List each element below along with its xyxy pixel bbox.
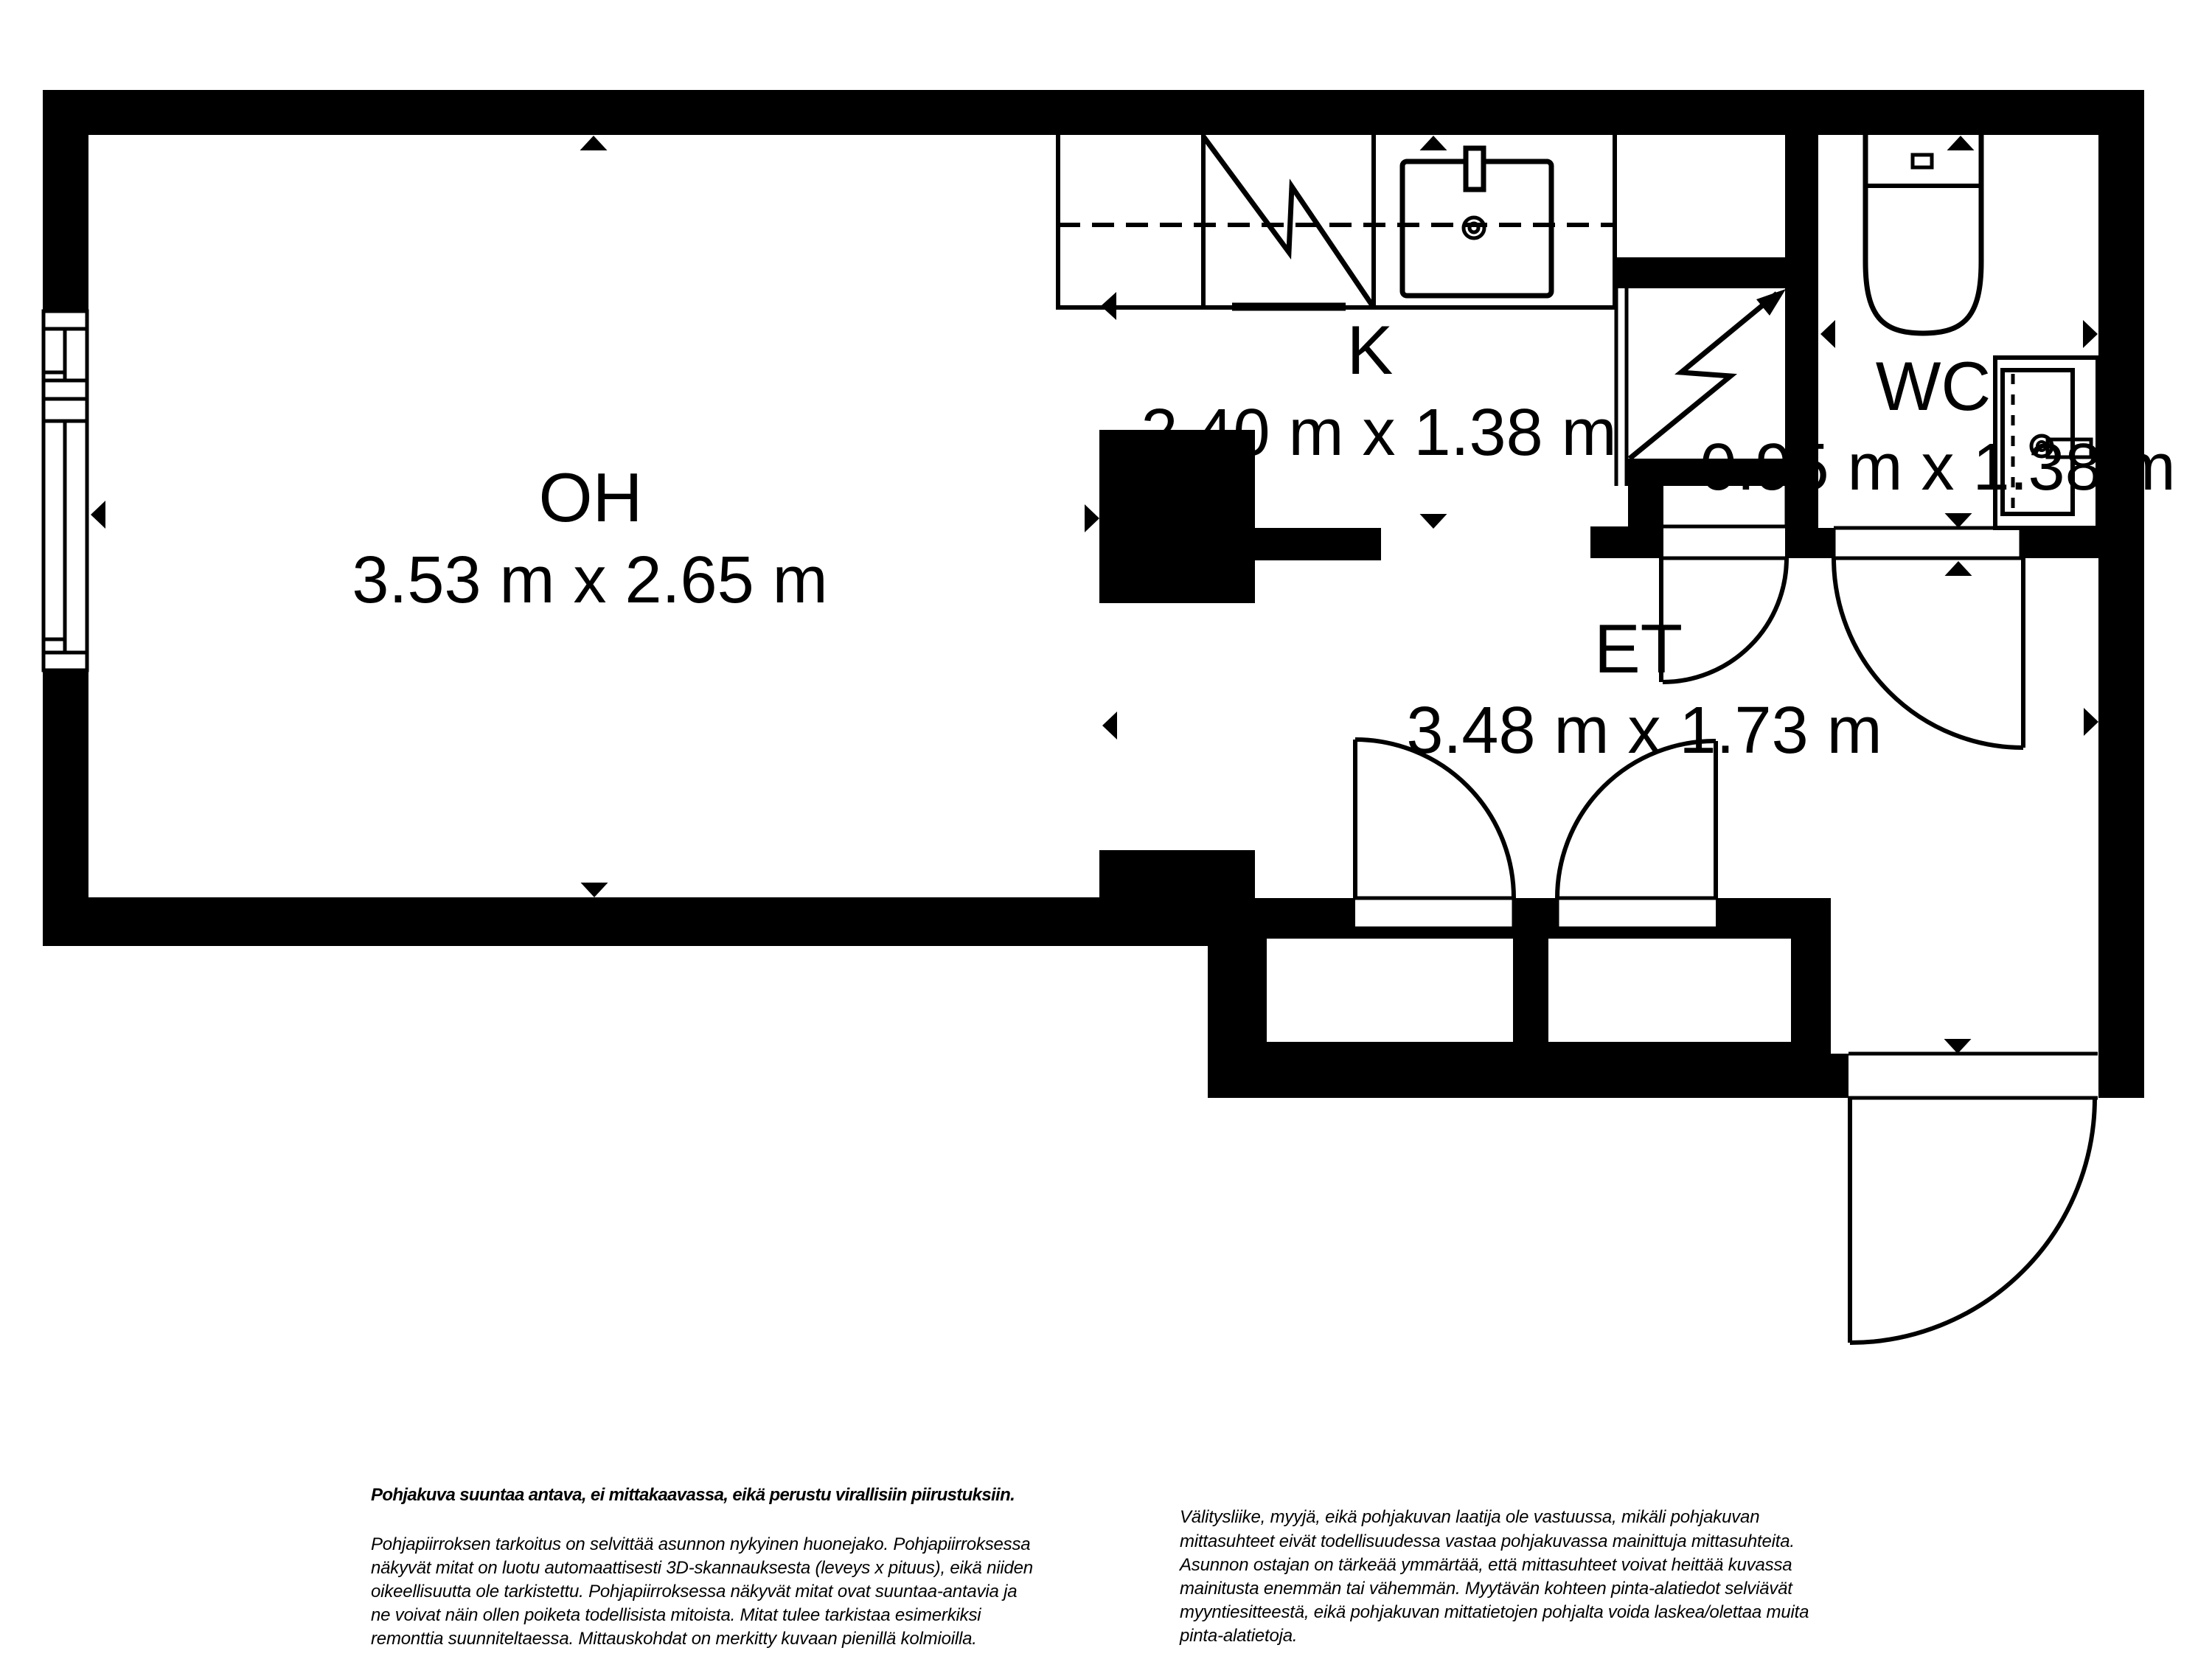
svg-text:3.53 m x 2.65 m: 3.53 m x 2.65 m <box>352 543 827 617</box>
svg-text:remonttia suunniteltaessa. Mit: remonttia suunniteltaessa. Mittauskohdat… <box>371 1629 977 1649</box>
svg-text:Pohjakuva suuntaa antava, ei m: Pohjakuva suuntaa antava, ei mittakaavas… <box>371 1485 1015 1505</box>
svg-text:Välitysliike, myyjä, eikä pohj: Välitysliike, myyjä, eikä pohjakuvan laa… <box>1180 1507 1759 1527</box>
svg-text:K: K <box>1347 311 1394 389</box>
svg-text:pinta-alatietoja.: pinta-alatietoja. <box>1179 1626 1297 1646</box>
svg-text:oikeellisuutta ole tarkistettu: oikeellisuutta ole tarkistettu. Pohjapii… <box>371 1582 1017 1601</box>
svg-text:mittasuhteet eivät todellisuud: mittasuhteet eivät todellisuudessa vasta… <box>1180 1531 1795 1551</box>
svg-text:OH: OH <box>539 459 643 536</box>
svg-text:mainitusta enemmän tai vähemmä: mainitusta enemmän tai vähemmän. Myytävä… <box>1180 1579 1793 1599</box>
svg-text:WC: WC <box>1876 347 1992 425</box>
svg-text:Pohjapiirroksen tarkoitus on s: Pohjapiirroksen tarkoitus on selvittää a… <box>371 1534 1030 1554</box>
svg-text:Asunnon ostajan on tärkeää ymm: Asunnon ostajan on tärkeää ymmärtää, ett… <box>1178 1555 1792 1575</box>
svg-text:myyntiesitteestä, eikä pohjaku: myyntiesitteestä, eikä pohjakuvan mittat… <box>1180 1602 1809 1622</box>
svg-text:näkyvät mitat on luotu automaa: näkyvät mitat on luotu automaattisesti 3… <box>371 1558 1033 1578</box>
svg-text:ET: ET <box>1594 610 1683 687</box>
svg-text:ne voivat näin ollen poiketa t: ne voivat näin ollen poiketa todellisist… <box>371 1605 981 1625</box>
svg-text:3.48 m x 1.73 m: 3.48 m x 1.73 m <box>1406 694 1882 768</box>
